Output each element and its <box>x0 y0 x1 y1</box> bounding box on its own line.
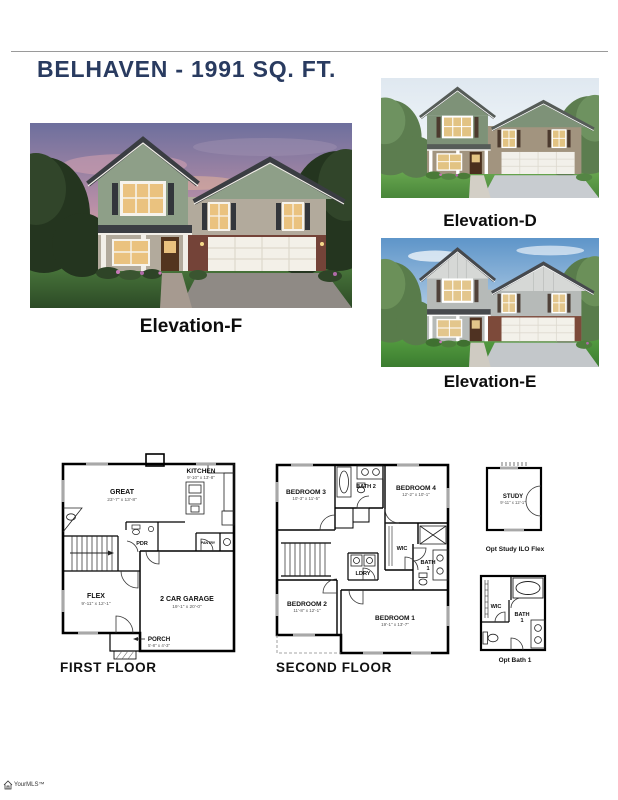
great-label: GREAT <box>110 489 135 496</box>
elevation-d-caption: Elevation-D <box>381 211 599 231</box>
vanity <box>531 620 545 648</box>
porch-label: PORCH <box>148 636 171 643</box>
opt-bath-plan: WIC BATH 1 <box>477 570 551 656</box>
elevation-d-illustration <box>381 78 599 198</box>
opt-bath1-label-line2: 1 <box>520 618 523 624</box>
flyer-page: { "page": { "title": "BELHAVEN - 1991 SQ… <box>0 0 618 800</box>
elevation-f-illustration <box>30 123 352 308</box>
garage-label: 2 CAR GARAGE <box>160 596 214 603</box>
pantry-label: PANTRY <box>201 541 216 545</box>
first-floor-svg: KITCHEN 9'-10" x 13'-8" GREAT 23'-7" x 1… <box>58 450 240 662</box>
second-floor-plan: BEDROOM 3 10'-3" x 11'-5" BATH 2 BEDROOM… <box>273 458 451 663</box>
flex-dims: 9'-11" x 12'-1" <box>81 601 110 607</box>
bedroom2-dims: 11'-8" x 12'-1" <box>293 608 321 613</box>
bedroom4-label: BEDROOM 4 <box>396 485 436 492</box>
opt-study-plan: STUDY 9'-11" x 12'-1" <box>484 460 546 540</box>
kitchen-dims: 9'-10" x 13'-8" <box>187 475 215 480</box>
tub <box>513 578 543 598</box>
toilet <box>483 632 498 644</box>
bedroom1-label: BEDROOM 1 <box>375 615 415 622</box>
second-floor-svg: BEDROOM 3 10'-3" x 11'-5" BATH 2 BEDROOM… <box>273 458 451 663</box>
shower-closet <box>420 526 446 544</box>
second-floor-label: SECOND FLOOR <box>276 660 392 675</box>
bedroom4-dims: 12'-2" x 10'-1" <box>402 492 430 497</box>
ldry-label: LDRY <box>355 571 370 577</box>
porch-dims: 5'-8" x 4'-3" <box>148 643 171 648</box>
elevation-e-caption: Elevation-E <box>381 372 599 392</box>
bath1-label-line2: 1 <box>426 566 429 572</box>
page-title: BELHAVEN - 1991 SQ. FT. <box>37 56 336 83</box>
fireplace <box>63 508 82 532</box>
stairs <box>70 536 114 571</box>
opt-bath-caption: Opt Bath 1 <box>477 657 553 664</box>
great-dims: 23'-7" x 13'-8" <box>107 497 137 503</box>
elevation-d-photo <box>381 78 599 198</box>
opt-study-svg: STUDY 9'-11" x 12'-1" <box>484 460 546 540</box>
watermark-text: YourMLS™ <box>14 782 44 788</box>
kitchen-label: KITCHEN <box>187 468 216 475</box>
yourmls-watermark: YourMLS™ <box>3 780 44 790</box>
stairs-up <box>285 543 325 576</box>
first-floor-plan: KITCHEN 9'-10" x 13'-8" GREAT 23'-7" x 1… <box>58 450 240 662</box>
bedroom2-label: BEDROOM 2 <box>287 601 327 608</box>
bath2-label: BATH 2 <box>356 484 376 490</box>
bath2-fixtures <box>337 466 383 497</box>
house-icon <box>3 780 13 790</box>
laundry-fixtures <box>351 555 375 566</box>
opt-wic-label: WIC <box>491 604 502 610</box>
pdr-fixtures <box>132 525 154 535</box>
elevation-e-photo <box>381 238 599 367</box>
garage-dims: 19'-1" x 20'-0" <box>172 604 202 610</box>
first-floor-label: FIRST FLOOR <box>60 660 157 675</box>
elevation-f-caption: Elevation-F <box>30 316 352 338</box>
study-dims: 9'-11" x 12'-1" <box>500 500 526 505</box>
bedroom3-label: BEDROOM 3 <box>286 489 326 496</box>
pdr-label: PDR <box>136 541 148 547</box>
opt-study-caption: Opt Study ILO Flex <box>477 546 553 553</box>
bedroom3-dims: 10'-3" x 11'-5" <box>292 496 320 501</box>
flex-label: FLEX <box>87 593 105 600</box>
bedroom1-dims: 19'-1" x 13'-7" <box>381 622 409 627</box>
opt-bath-svg: WIC BATH 1 <box>477 570 551 656</box>
header-rule <box>11 51 608 52</box>
elevation-e-illustration <box>381 238 599 367</box>
wic-label: WIC <box>397 546 408 552</box>
elevation-f-photo <box>30 123 352 308</box>
